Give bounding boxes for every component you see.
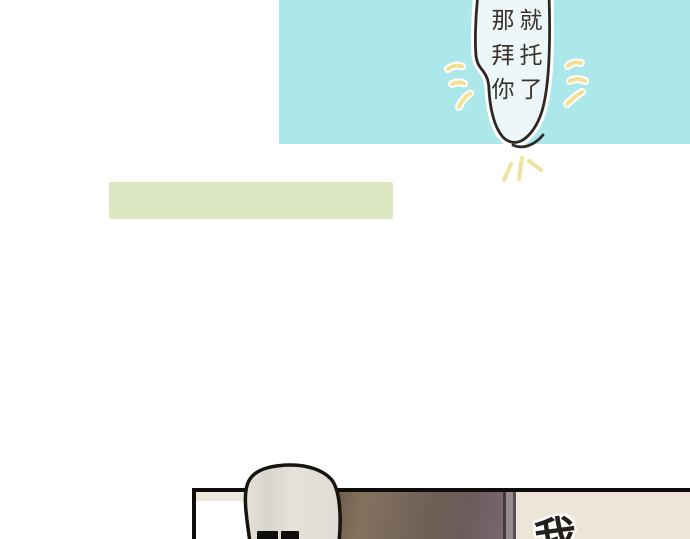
speech-line: 那就 — [486, 4, 548, 39]
character-head — [232, 458, 350, 539]
sparkle-left-icon — [448, 66, 470, 107]
speech-line: 你了 — [486, 73, 548, 108]
sparkle-right-icon — [567, 62, 585, 104]
character-hair — [257, 531, 299, 539]
speech-line: 拜托 — [486, 39, 548, 74]
speech-bubble-text: 那就 拜托 你了 — [486, 4, 548, 108]
comic-page: 那就 拜托 你了 我 — [0, 0, 690, 539]
sparkle-burst-icon — [504, 158, 541, 180]
